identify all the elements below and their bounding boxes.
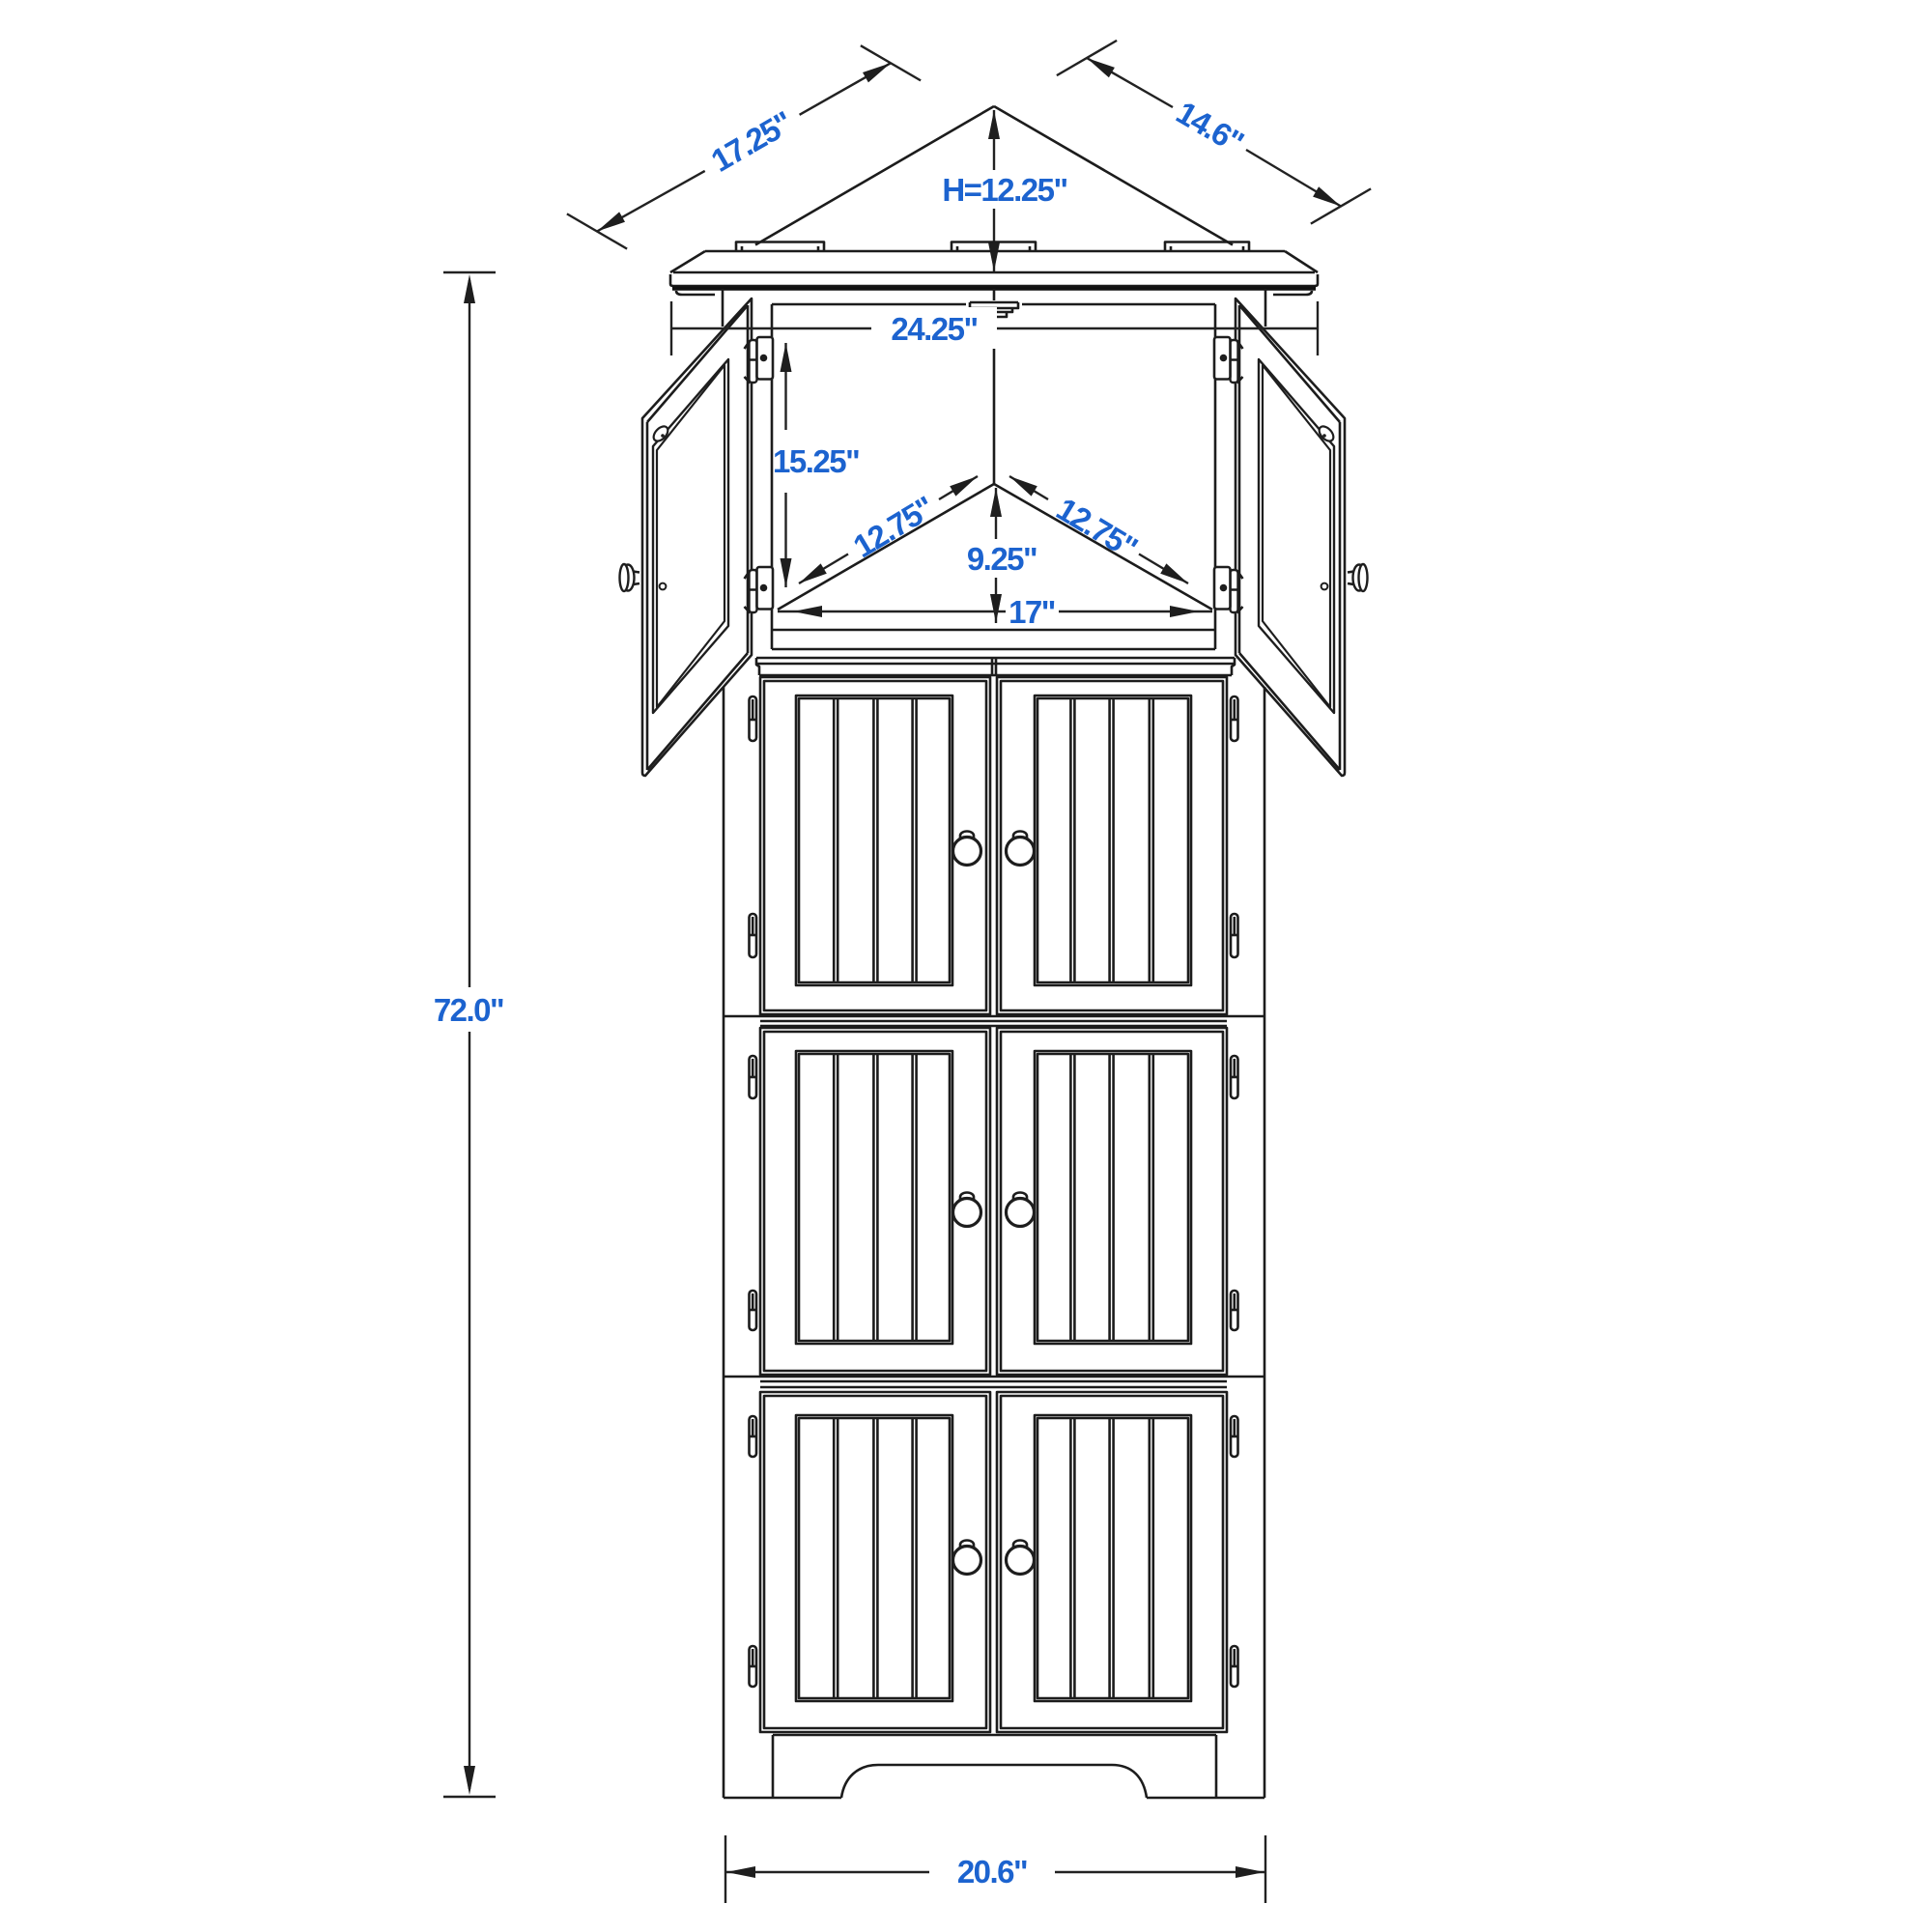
svg-text:9.25": 9.25" (967, 541, 1037, 577)
svg-text:24.25": 24.25" (891, 311, 977, 347)
svg-text:20.6": 20.6" (957, 1854, 1027, 1889)
svg-text:17": 17" (1009, 594, 1055, 630)
svg-text:15.25": 15.25" (773, 443, 859, 479)
svg-text:72.0": 72.0" (434, 992, 503, 1028)
svg-text:H=12.25": H=12.25" (942, 172, 1066, 208)
